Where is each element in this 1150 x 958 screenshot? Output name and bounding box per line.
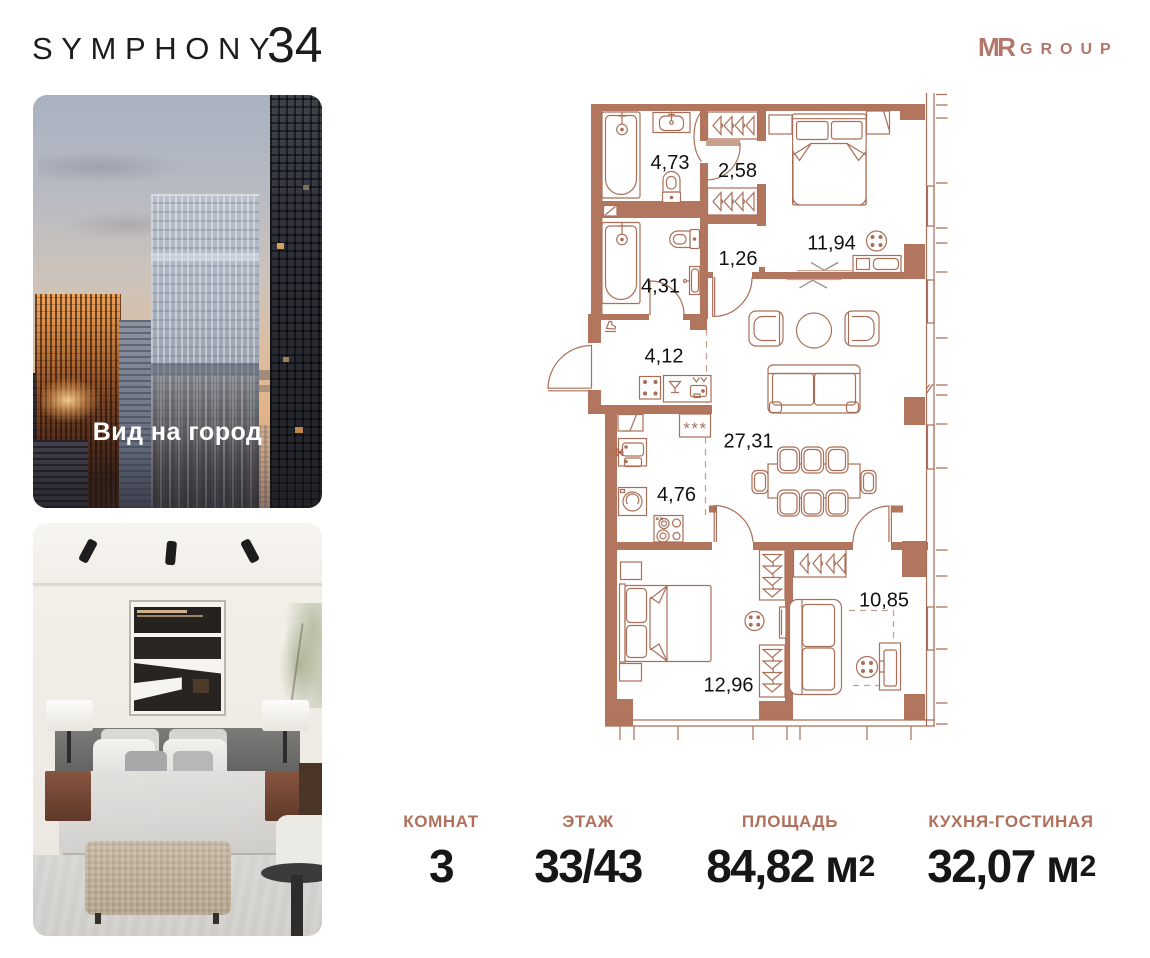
svg-text:4,31: 4,31 [641,276,680,298]
svg-text:27,31: 27,31 [723,431,773,453]
svg-text:10,85: 10,85 [859,590,909,612]
svg-text:12,96: 12,96 [703,675,753,697]
svg-text:4,73: 4,73 [651,152,690,174]
svg-text:4,76: 4,76 [657,484,696,506]
svg-text:11,94: 11,94 [807,233,856,255]
svg-text:1,26: 1,26 [719,248,758,270]
svg-text:2,58: 2,58 [718,160,757,182]
svg-text:***: *** [683,419,707,438]
svg-text:4,12: 4,12 [645,346,684,368]
